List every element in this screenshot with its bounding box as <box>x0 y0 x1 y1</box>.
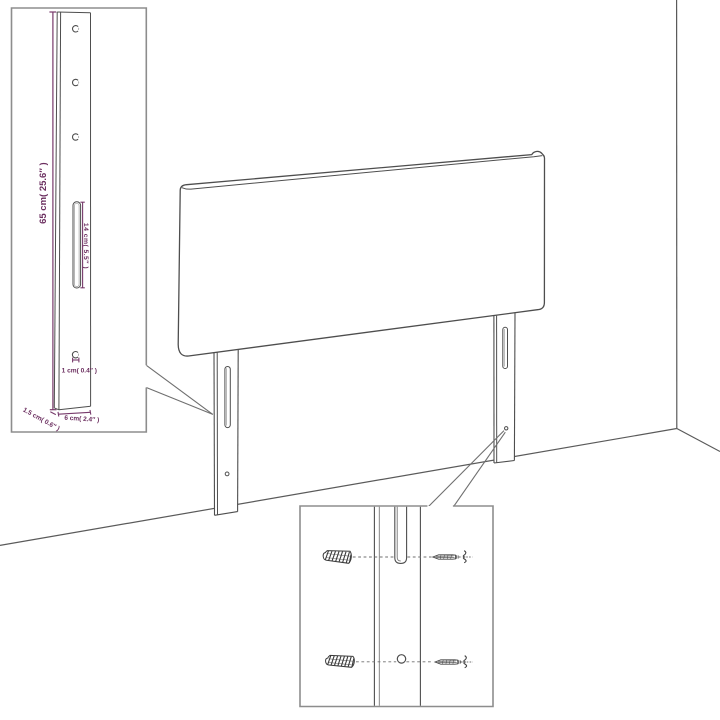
svg-text:1 cm( 0.4″ ): 1 cm( 0.4″ ) <box>62 367 97 374</box>
svg-text:65 cm( 25.6″ ): 65 cm( 25.6″ ) <box>38 162 49 224</box>
svg-text:14 cm( 5.5″ ): 14 cm( 5.5″ ) <box>82 223 89 269</box>
